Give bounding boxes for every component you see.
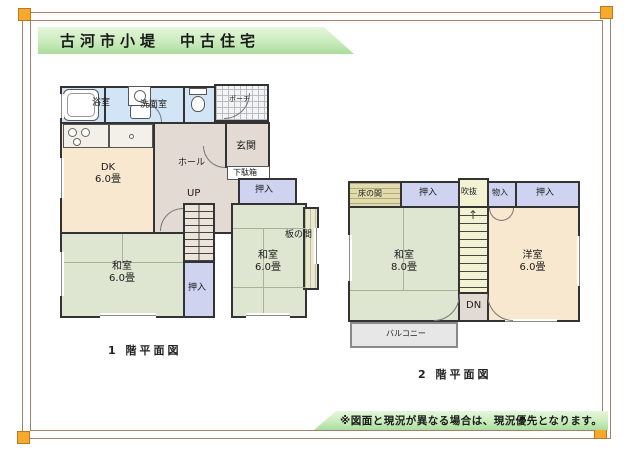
- label-washitsu-2f: 和室 8.0畳: [379, 250, 429, 273]
- window: [314, 228, 319, 264]
- tatami-seam: [403, 208, 404, 290]
- label-dk: DK 6.0畳: [88, 162, 128, 185]
- tatami-seam: [233, 287, 305, 288]
- label-closet-2f-left: 押入: [419, 188, 437, 198]
- label-hall: ホール: [178, 158, 205, 168]
- label-dn: DN: [466, 300, 481, 312]
- label-itanoma: 板の間: [285, 230, 312, 240]
- label-entrance: 玄関: [236, 141, 256, 153]
- label-porch: ポーチ: [229, 95, 250, 103]
- label-closet-1f-right: 押入: [255, 185, 273, 195]
- toilet-icon: [189, 88, 207, 95]
- window: [246, 313, 290, 318]
- window: [59, 94, 64, 118]
- label-storage-2f: 物入: [492, 188, 508, 197]
- label-closet-1f-center: 押入: [188, 283, 206, 293]
- window: [59, 252, 64, 296]
- caption-floor2: 2 階平面図: [418, 366, 491, 382]
- window: [577, 236, 582, 286]
- label-up: UP: [187, 188, 200, 200]
- floor-plan-flyer: 古河市小堤 中古住宅 浴室: [0, 0, 640, 453]
- tatami-seam: [233, 228, 305, 229]
- label-washroom: 洗面室: [140, 100, 167, 110]
- window: [347, 235, 352, 281]
- label-tokonoma: 床の間: [357, 189, 383, 198]
- label-bath: 浴室: [92, 98, 110, 108]
- caption-floor1: 1 階平面図: [108, 342, 181, 358]
- stairs-1f-up: [183, 203, 215, 263]
- window: [100, 313, 156, 318]
- toilet-bowl-icon: [191, 96, 205, 112]
- window: [59, 158, 64, 198]
- stairs-up-arrow-icon: ↑: [468, 208, 478, 222]
- label-shoe-cabinet: 下駄箱: [233, 168, 257, 177]
- label-balcony: バルコニー: [386, 329, 426, 338]
- tatami-seam: [350, 290, 458, 291]
- footer-note: ※図面と現況が異なる場合は、現況優先となります。: [314, 413, 602, 428]
- label-void: 吹抜: [461, 187, 477, 196]
- label-youshitsu-2f: 洋室 6.0畳: [505, 250, 560, 273]
- frame-corner-top-left: [18, 8, 31, 21]
- frame-corner-top-right: [600, 6, 613, 19]
- kitchen-counter-icon: [109, 124, 153, 148]
- frame-corner-bottom-left: [17, 431, 30, 444]
- title-banner: 古河市小堤 中古住宅: [38, 27, 354, 54]
- page-title: 古河市小堤 中古住宅: [38, 30, 260, 51]
- note-banner: ※図面と現況が異なる場合は、現況優先となります。: [314, 411, 608, 430]
- stove-icon: [63, 124, 109, 148]
- label-washitsu-1f-left: 和室 6.0畳: [97, 261, 147, 284]
- label-closet-2f-right: 押入: [536, 188, 554, 198]
- tatami-seam: [122, 234, 123, 262]
- label-washitsu-1f-right: 和室 6.0畳: [243, 250, 293, 273]
